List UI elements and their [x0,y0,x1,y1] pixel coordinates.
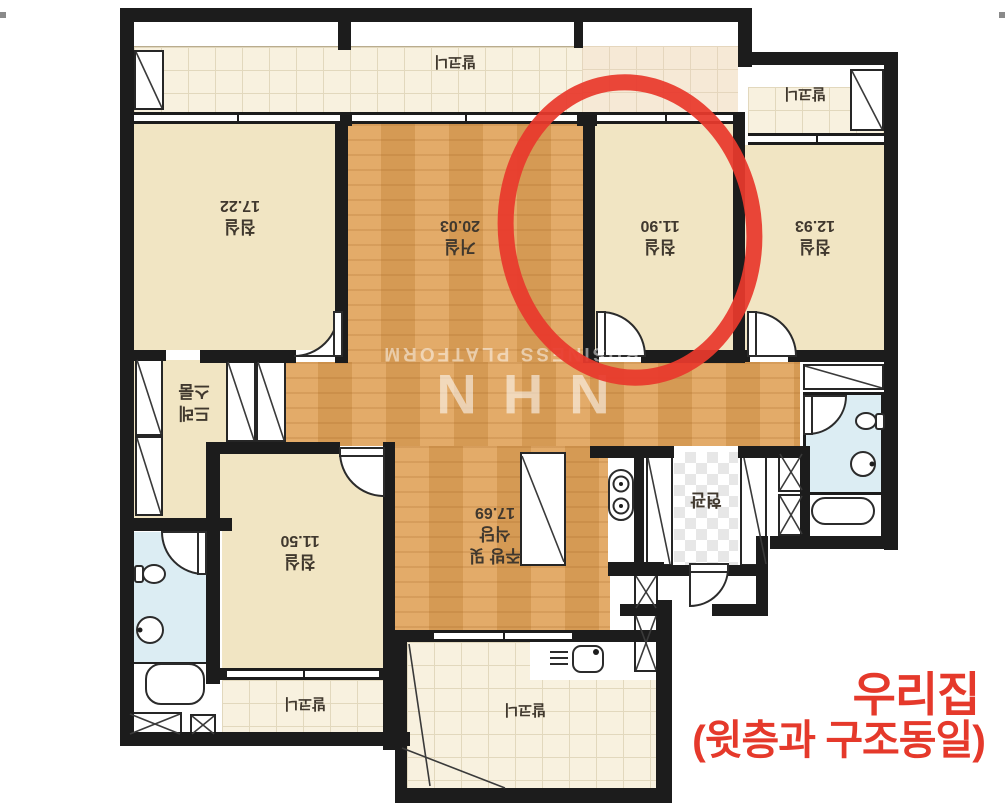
wall [884,52,898,550]
room-name: 식당 [430,522,560,544]
wall [340,112,352,126]
window [227,668,379,680]
screen-edge-artifact [999,12,1005,18]
room-area: 11.50 [235,530,365,550]
room-name: 침실 [175,215,305,237]
wall [712,604,768,616]
bathtub-zone-right [803,492,884,539]
shoe-closet-left [646,454,673,566]
wall [120,518,232,531]
wall [130,350,166,361]
window [134,112,340,124]
room-area: 20.03 [395,215,525,235]
room-label-bedroom-circled: 침실 11.90 [595,215,725,257]
wardrobe-2 [135,436,163,516]
window [352,112,577,124]
screen-edge-artifact [0,12,6,18]
wall [728,565,768,576]
wall [738,52,898,65]
wall [788,350,884,362]
balcony-top-floor-right-section [582,46,738,112]
closet-2 [256,360,286,442]
bathtub-zone-left [133,662,208,714]
wall [608,562,664,576]
room-label-bedroom-17: 침실 17.22 [175,195,305,237]
balcony-label-bottom-center: 발코니 [465,700,585,721]
wall [338,22,351,50]
bathroom-right-floor [803,392,884,495]
balcony-label-top: 발코니 [395,52,515,73]
window [434,630,572,642]
wall [583,112,595,363]
room-label-bedroom-right: 침실 12.93 [748,215,882,257]
room-label-dressroom: 드레 스룸 [152,380,236,424]
caption-line2: (윗층과 구조동일) [672,706,1005,766]
balcony-label-top-right: 발코니 [750,84,860,105]
room-area: 17.69 [430,502,560,522]
room-label-living: 거실 20.03 [395,215,525,257]
wall [206,442,220,684]
closet-strip-right [803,364,884,390]
balcony-top-ledge [134,22,738,46]
stove-niche [608,452,634,564]
hall-floor [284,362,800,446]
wall [395,788,672,803]
wall [574,8,583,48]
window [748,133,884,145]
wall [634,446,644,568]
door-arc-entrance [690,568,728,606]
wall [733,112,745,363]
room-label-kitchen: 주방 및 식당 17.69 [430,502,560,566]
wall [770,536,898,549]
wall [120,732,410,746]
room-name: 드레 [152,402,236,424]
window [597,112,733,124]
wall [745,350,750,362]
room-name: 주방 및 [430,544,560,566]
room-name: 침실 [595,235,725,257]
wall [593,350,599,363]
wall [120,8,752,22]
room-name: 현관 [672,488,740,510]
room-area: 11.90 [595,215,725,235]
room-area: 17.22 [175,195,305,215]
wall [200,350,296,363]
wall [395,630,407,800]
wall [335,118,348,363]
floorplan-screenshot: 침실 17.22 거실 20.03 침실 11.90 침실 12.93 침실 1… [0,0,1005,807]
room-label-bedroom-bottom: 침실 11.50 [235,530,365,572]
wall [383,442,395,682]
wall [210,442,340,454]
wall [590,446,674,458]
room-name: 침실 [748,235,882,257]
room-name: 침실 [235,550,365,572]
room-name: 스룸 [152,380,236,402]
ac-unit-box-top-left [134,50,164,110]
wall [800,446,810,540]
wall [577,112,597,126]
balcony-label-bottom-left: 발코니 [245,694,365,715]
shaft-box-6 [634,614,658,672]
wall [120,8,134,745]
room-area: 12.93 [748,215,882,235]
bathroom-left-floor [133,532,208,662]
room-label-entrance: 현관 [672,488,740,510]
wall [383,664,395,750]
wall [641,350,745,363]
room-name: 거실 [395,235,525,257]
wall [738,446,808,458]
